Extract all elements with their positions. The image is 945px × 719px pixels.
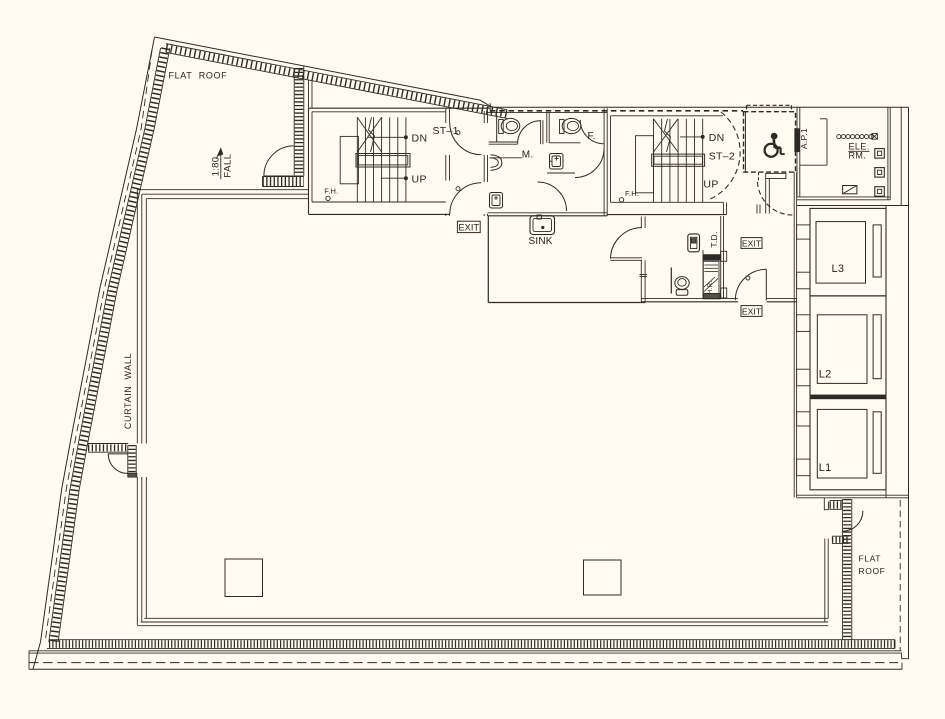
svg-text:L1: L1 — [819, 462, 832, 474]
svg-text:FLAT ROOF: FLAT ROOF — [169, 71, 228, 81]
svg-text:ST–2: ST–2 — [709, 151, 735, 163]
svg-text:DN: DN — [709, 132, 725, 144]
svg-text:EXIT: EXIT — [742, 307, 762, 317]
svg-text:FLAT: FLAT — [859, 554, 882, 564]
svg-text:A.P.1: A.P.1 — [799, 128, 809, 149]
svg-text:F.H.: F.H. — [625, 189, 639, 198]
svg-text:L3: L3 — [832, 263, 845, 275]
svg-text:EXIT: EXIT — [742, 239, 762, 249]
svg-text:1:80: 1:80 — [211, 157, 222, 177]
svg-text:ST–1: ST–1 — [433, 125, 459, 137]
svg-text:L2: L2 — [819, 369, 832, 381]
svg-text:F.: F. — [588, 131, 596, 142]
svg-text:UP: UP — [703, 179, 718, 191]
svg-text:CURTAIN WALL: CURTAIN WALL — [123, 353, 133, 429]
svg-text:SINK: SINK — [529, 236, 553, 247]
svg-text:M.: M. — [522, 149, 534, 160]
svg-text:H.R.: H.R. — [707, 281, 714, 295]
svg-text:T.D.: T.D. — [709, 231, 719, 247]
svg-text:DN: DN — [412, 133, 428, 145]
svg-text:RM.: RM. — [849, 151, 867, 161]
svg-text:ROOF: ROOF — [859, 566, 886, 576]
svg-text:UP: UP — [412, 174, 427, 186]
svg-text:FALL: FALL — [223, 153, 234, 177]
svg-text:F.H.: F.H. — [324, 187, 338, 196]
svg-text:EXIT: EXIT — [458, 222, 479, 232]
